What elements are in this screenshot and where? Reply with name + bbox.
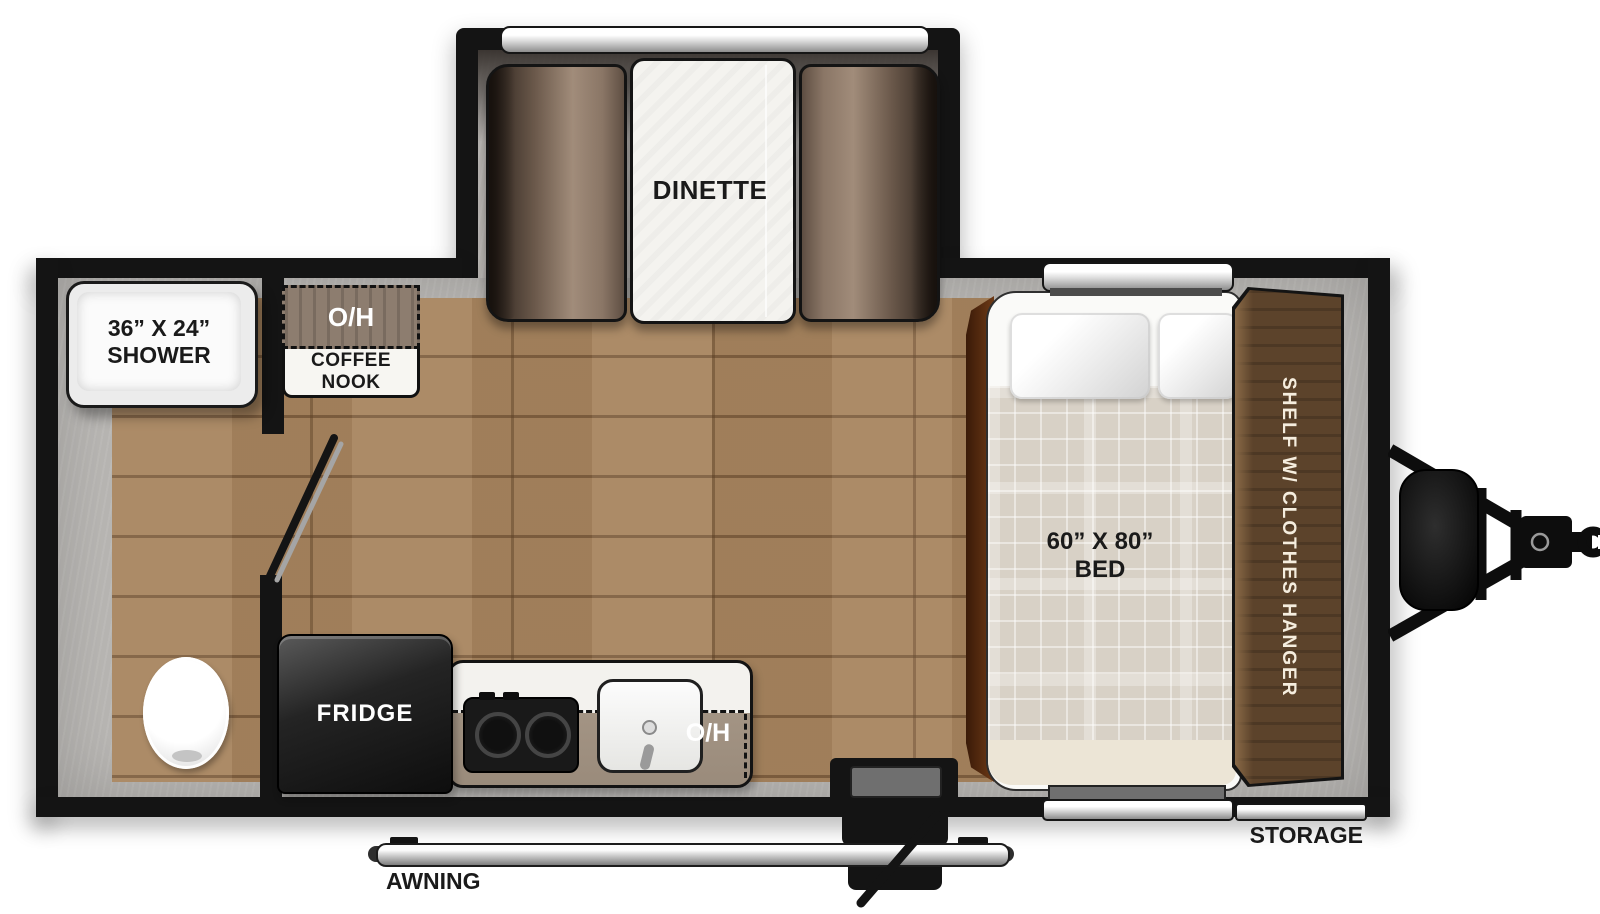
bottom-window — [1042, 799, 1234, 821]
hitch-pin-hole — [1532, 534, 1548, 550]
wall-right — [1368, 258, 1390, 817]
awning-label: AWNING — [386, 868, 506, 894]
shower-label: 36” X 24” SHOWER — [107, 315, 211, 368]
shower-basin: 36” X 24” SHOWER — [77, 292, 241, 391]
wall-left — [36, 258, 58, 817]
stove-cooktop — [463, 697, 579, 773]
shower-size-text: 36” X 24” — [107, 315, 211, 341]
bed-foot-sheet — [988, 740, 1236, 785]
shelf-label: SHELF W/ CLOTHES HANGER — [1277, 377, 1299, 697]
coffee-nook-counter: COFFEE NOOK — [282, 349, 420, 398]
dinette-seat-left — [486, 64, 627, 322]
storage-access-door — [1235, 803, 1367, 821]
coffee-nook-overhead-cabinet: O/H — [282, 285, 420, 349]
dinette-label: DINETTE — [630, 176, 790, 206]
stove-knob — [503, 692, 519, 700]
shower: 36” X 24” SHOWER — [66, 281, 258, 408]
entry-door-swing — [845, 805, 950, 913]
wall-top-left-segment — [36, 258, 462, 278]
pillow — [1158, 313, 1238, 399]
coffee-nook-oh-label: O/H — [328, 303, 374, 332]
fridge-label: FRIDGE — [317, 701, 414, 727]
dinette-seat-backrest — [911, 67, 937, 319]
stove-burner — [525, 712, 571, 758]
shower-name-text: SHOWER — [107, 342, 211, 368]
propane-tank — [1400, 470, 1478, 610]
stove-knob — [479, 692, 495, 700]
dinette-seat-right — [799, 64, 940, 322]
bathroom-door-swing — [255, 428, 355, 588]
storage-label: STORAGE — [1238, 822, 1363, 848]
bed-name-text: BED — [1010, 556, 1190, 584]
bed-label: 60” X 80” BED — [1010, 528, 1190, 583]
toilet-flush-button — [172, 750, 202, 762]
kitchen-oh-label: O/H — [668, 720, 748, 748]
bedroom-window-sill — [1050, 288, 1222, 296]
shelf-bevel — [1235, 290, 1253, 784]
bathroom-wall-upper — [262, 260, 284, 434]
fridge: FRIDGE — [277, 634, 453, 794]
sink-drain — [642, 720, 657, 735]
entry-step-surface — [850, 766, 942, 798]
floorplan-canvas: 36” X 24” SHOWER O/H COFFEE NOOK O/H FRI… — [0, 0, 1600, 914]
entry-step-platform — [830, 758, 958, 804]
bed-size-text: 60” X 80” — [1010, 528, 1190, 556]
trailer-hitch — [1388, 440, 1600, 646]
shelf-with-clothes-hanger: SHELF W/ CLOTHES HANGER — [1235, 290, 1341, 784]
stove-burner — [475, 712, 521, 758]
sink-faucet — [639, 743, 655, 771]
dinette-seat-backrest — [489, 67, 515, 319]
pillow — [1010, 313, 1150, 399]
slideout-window — [500, 26, 930, 54]
coffee-nook-label: COFFEE NOOK — [285, 350, 417, 394]
